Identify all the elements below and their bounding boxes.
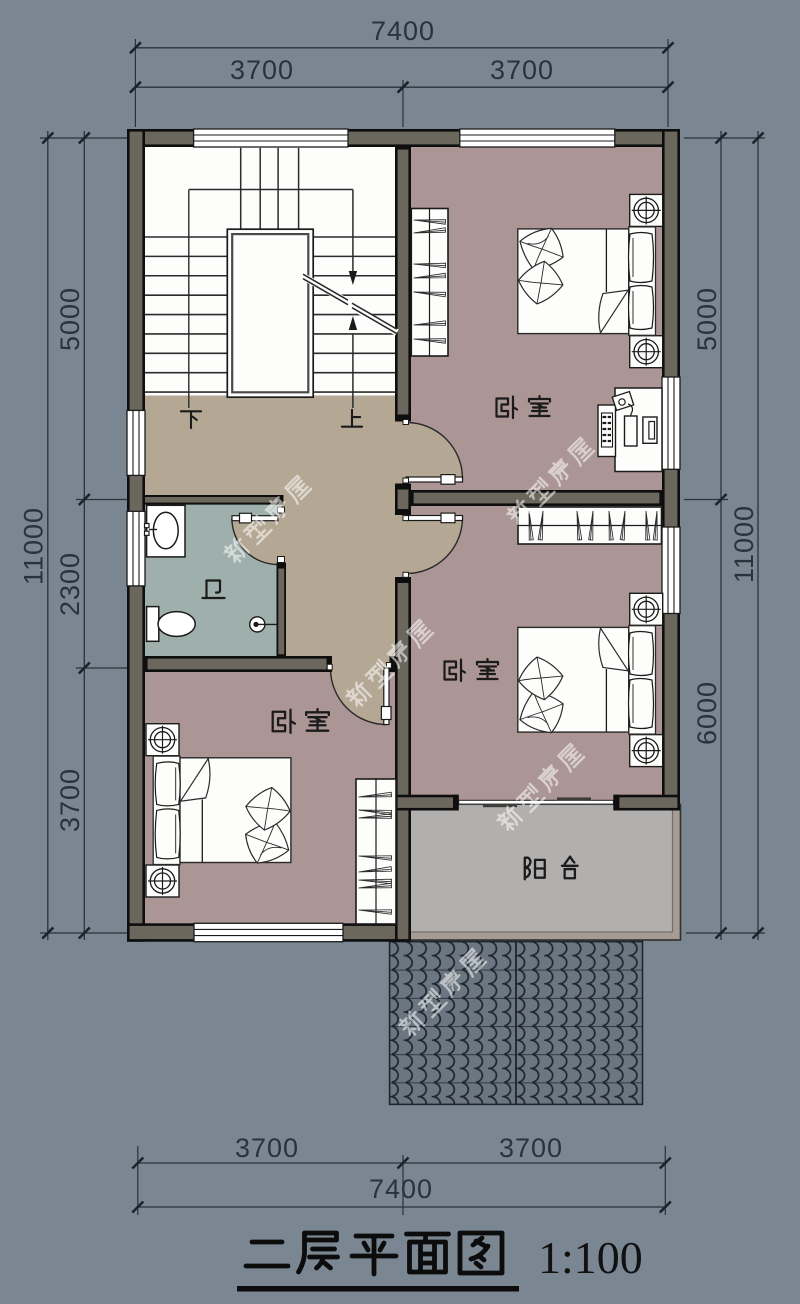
svg-text:3700: 3700 [235, 1133, 299, 1163]
svg-text:7400: 7400 [371, 16, 435, 46]
svg-text:1:100: 1:100 [538, 1232, 643, 1283]
svg-text:7400: 7400 [369, 1174, 433, 1204]
svg-text:3700: 3700 [230, 55, 294, 85]
svg-text:2300: 2300 [55, 552, 85, 616]
svg-text:3700: 3700 [490, 55, 554, 85]
svg-text:6000: 6000 [692, 681, 722, 745]
svg-text:3700: 3700 [499, 1133, 563, 1163]
svg-text:5000: 5000 [55, 287, 85, 351]
svg-text:3700: 3700 [55, 768, 85, 832]
svg-text:5000: 5000 [692, 287, 722, 351]
svg-text:11000: 11000 [19, 507, 49, 585]
svg-text:11000: 11000 [729, 505, 759, 583]
